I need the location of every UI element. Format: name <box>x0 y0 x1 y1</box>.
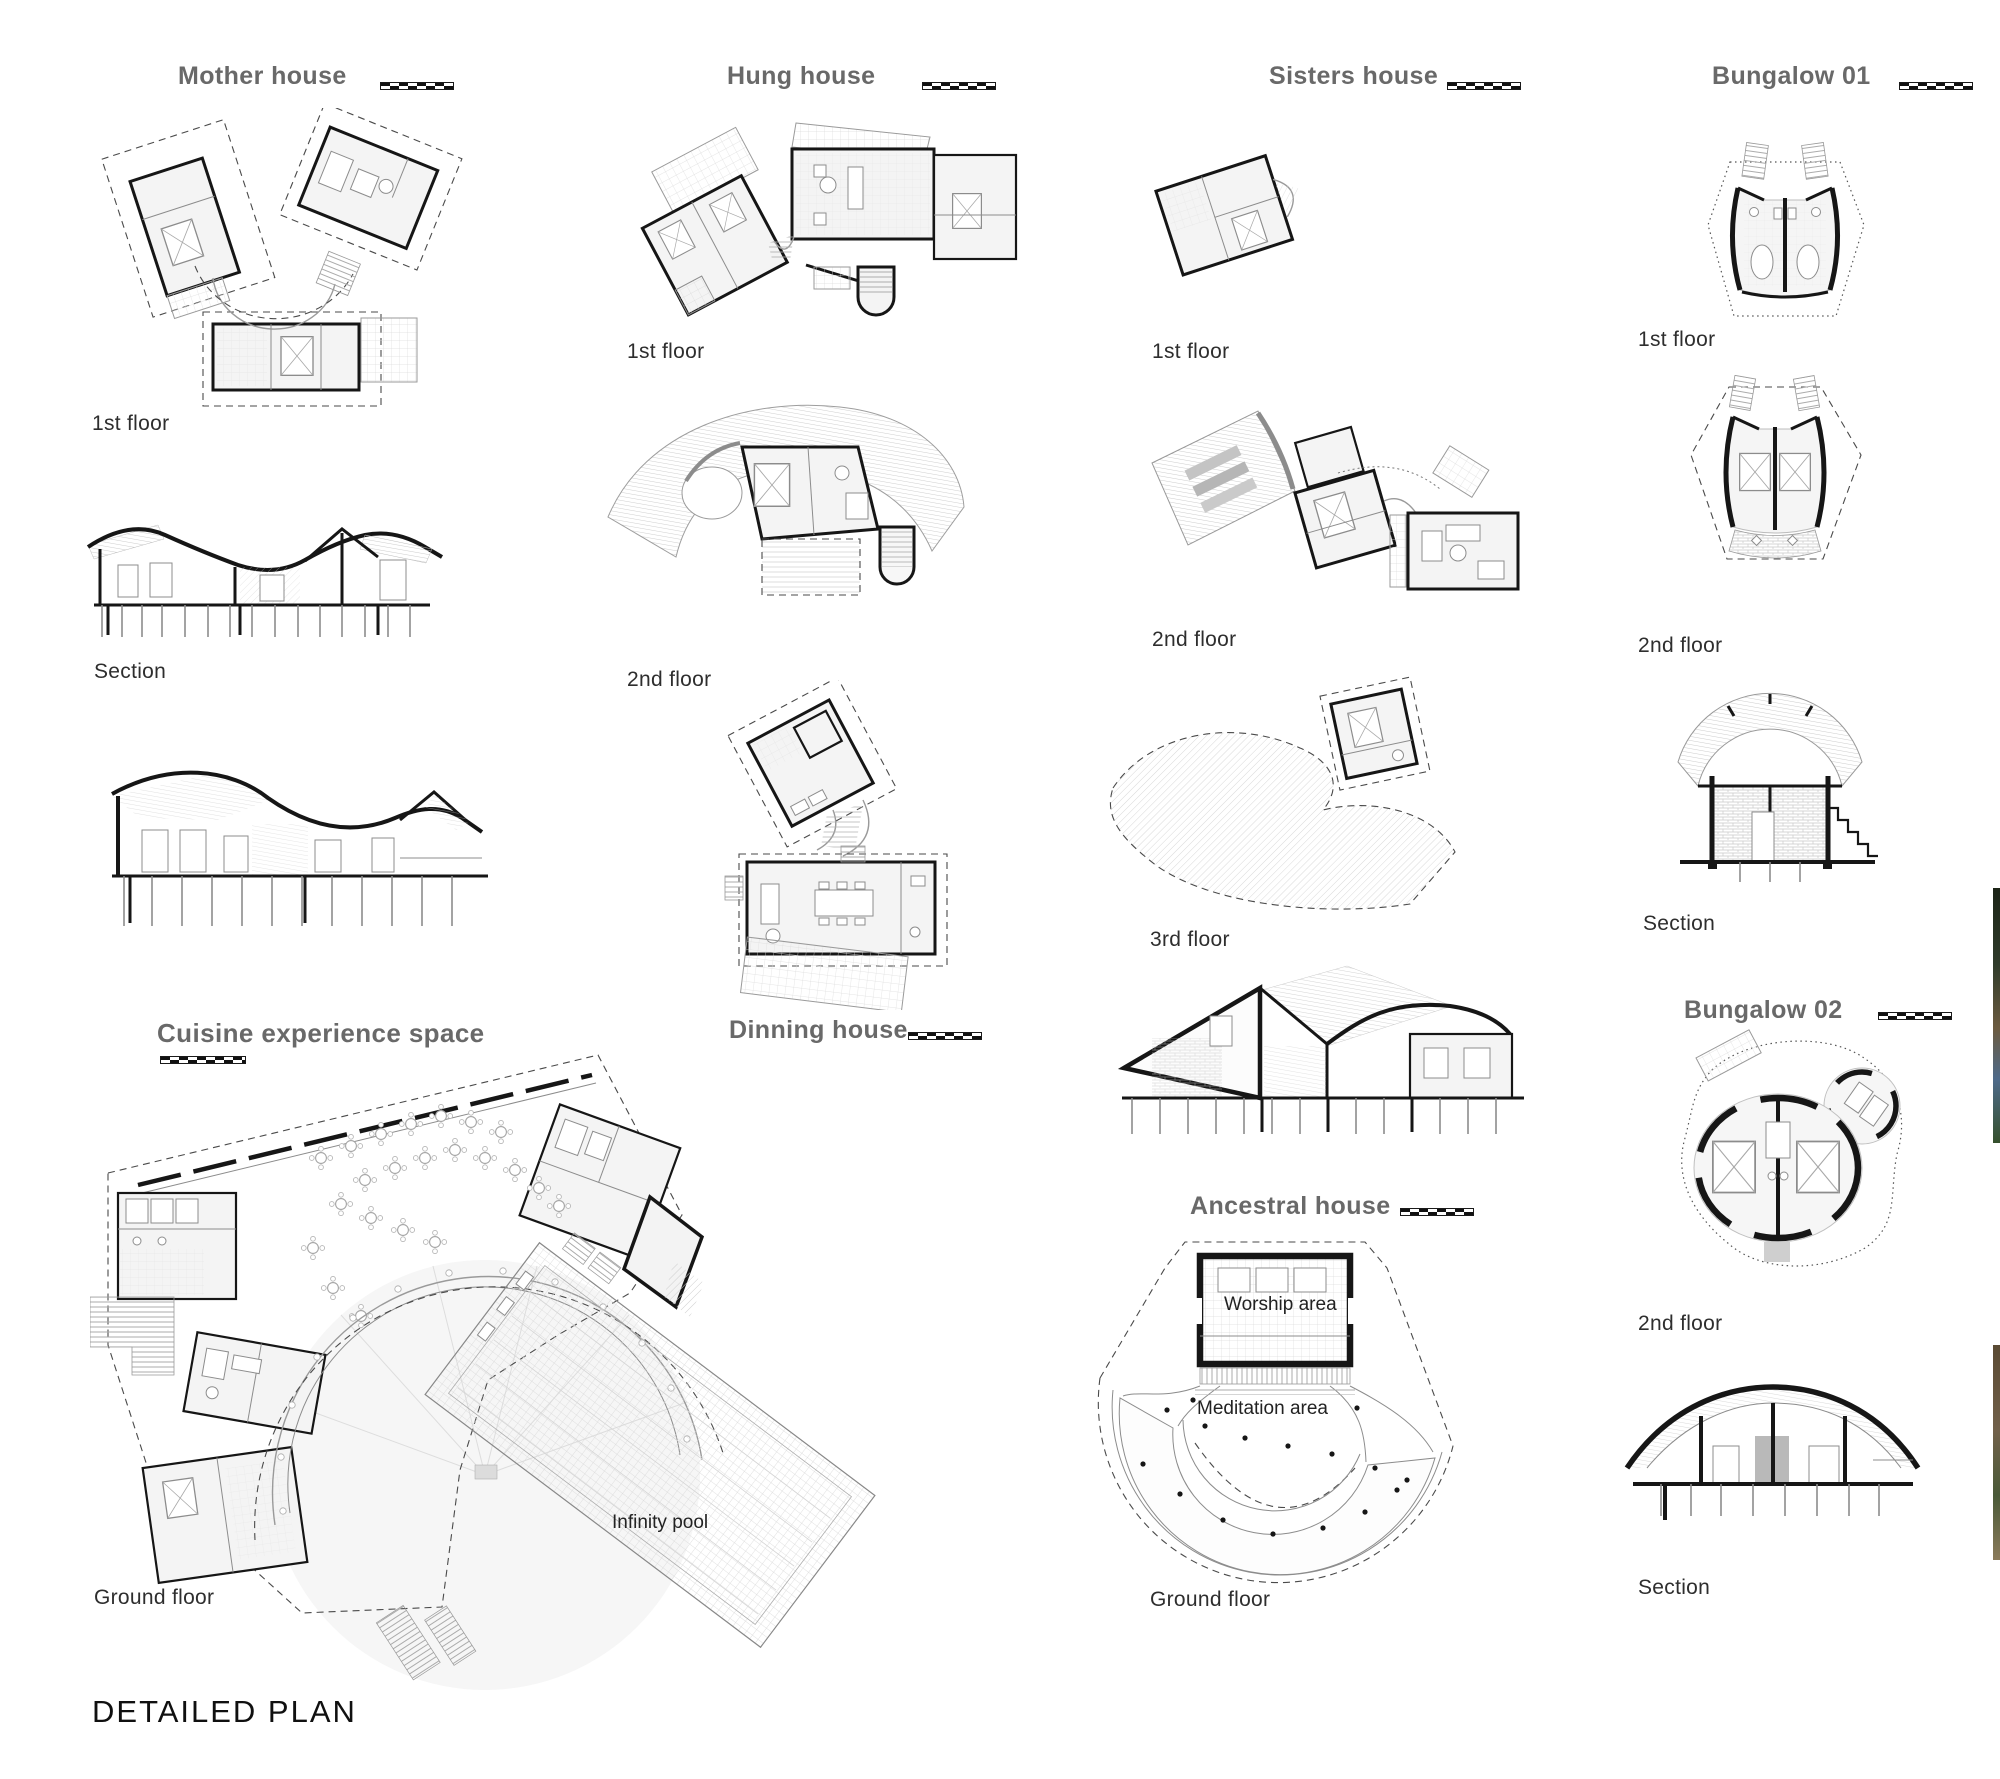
scale-bar-icon <box>1447 82 1521 90</box>
worship-area-label: Worship area <box>1224 1294 1337 1316</box>
cuisine-space-ground-floor-plan <box>90 1045 890 1735</box>
bungalow-02-second-floor-plan <box>1650 1028 1922 1280</box>
dinning-house-plan <box>715 680 970 1010</box>
right-edge-screenshot-sliver <box>1993 1345 2000 1560</box>
sisters-house-section-drawing <box>1112 950 1537 1140</box>
mother-house-first-floor-plan <box>95 108 495 408</box>
ancestral-house-title: Ancestral house <box>1190 1192 1391 1221</box>
bungalow01-second-floor-label: 2nd floor <box>1638 634 1722 658</box>
hung-house-second-floor-plan <box>590 385 1000 650</box>
bungalow01-section-label: Section <box>1643 912 1715 936</box>
detailed-plan-sheet: Mother house Hung house Sisters house Bu… <box>0 0 2000 1779</box>
infinity-pool-label: Infinity pool <box>612 1512 708 1534</box>
dinning-house-title: Dinning house <box>729 1016 908 1045</box>
hung-second-floor-label: 2nd floor <box>627 668 711 692</box>
scale-bar-icon <box>1899 82 1973 90</box>
sisters-first-floor-label: 1st floor <box>1152 340 1229 364</box>
hung-house-first-floor-plan <box>600 115 1020 330</box>
scale-bar-icon <box>1400 1208 1474 1216</box>
mother-section-label: Section <box>94 660 166 684</box>
scale-bar-icon <box>380 82 454 90</box>
cuisine-ground-floor-label: Ground floor <box>94 1586 214 1610</box>
bungalow-02-section-drawing <box>1615 1378 1930 1528</box>
sisters-house-third-floor-plan <box>1095 670 1525 915</box>
mother-house-elevation-drawing <box>100 758 530 958</box>
hung-first-floor-label: 1st floor <box>627 340 704 364</box>
mother-house-section-drawing <box>80 505 460 655</box>
sisters-house-first-floor-plan <box>1130 125 1330 330</box>
bungalow01-first-floor-label: 1st floor <box>1638 328 1715 352</box>
scale-bar-icon <box>922 82 996 90</box>
bungalow-01-section-drawing <box>1650 660 1880 900</box>
mother-first-floor-label: 1st floor <box>92 412 169 436</box>
sisters-second-floor-label: 2nd floor <box>1152 628 1236 652</box>
scale-bar-icon <box>1878 1012 1952 1020</box>
bungalow-01-first-floor-plan <box>1700 140 1870 325</box>
bungalow02-second-floor-label: 2nd floor <box>1638 1312 1722 1336</box>
bungalow02-section-label: Section <box>1638 1576 1710 1600</box>
sisters-house-second-floor-plan <box>1140 395 1535 630</box>
meditation-area-label: Meditation area <box>1197 1398 1328 1420</box>
sisters-third-floor-label: 3rd floor <box>1150 928 1230 952</box>
sheet-title: DETAILED PLAN <box>92 1694 357 1730</box>
scale-bar-icon <box>908 1032 982 1040</box>
mother-house-title: Mother house <box>178 62 347 91</box>
right-edge-screenshot-sliver <box>1993 888 2000 1143</box>
ancestral-ground-floor-label: Ground floor <box>1150 1588 1270 1612</box>
bungalow-01-second-floor-plan <box>1685 375 1865 570</box>
bungalow-02-title: Bungalow 02 <box>1684 996 1843 1025</box>
hung-house-title: Hung house <box>727 62 875 91</box>
sisters-house-title: Sisters house <box>1269 62 1438 91</box>
bungalow-01-title: Bungalow 01 <box>1712 62 1871 91</box>
ancestral-house-ground-floor-plan <box>1045 1228 1505 1616</box>
